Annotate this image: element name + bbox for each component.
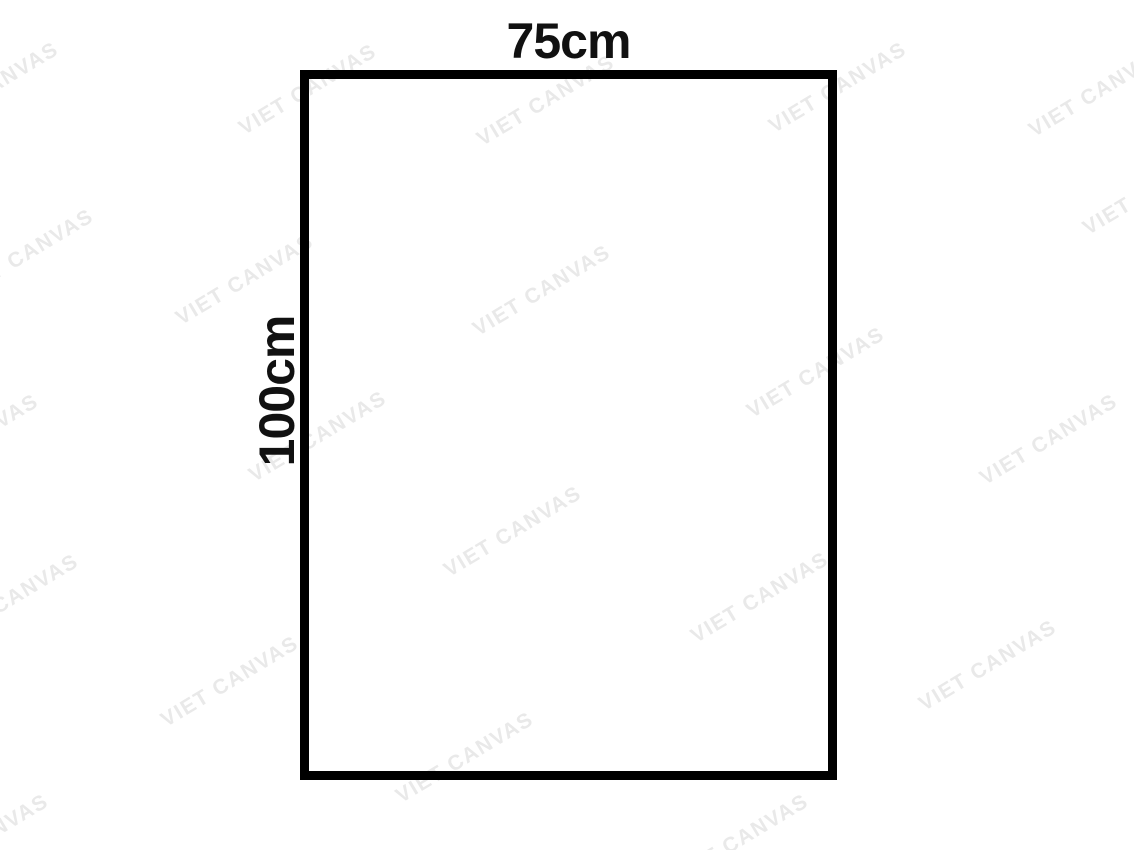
watermark-text: VIET CANVAS [1079, 140, 1134, 241]
watermark-text: VIET CANVAS [0, 38, 63, 139]
watermark-text: VIET CANVAS [1025, 42, 1134, 143]
height-dimension-label: 100cm [252, 316, 302, 467]
watermark-text: VIET CANVAS [667, 790, 813, 850]
dimension-diagram: VIET CANVASVIET CANVASVIET CANVASVIET CA… [0, 0, 1134, 850]
watermark-text: VIET CANVAS [0, 205, 98, 306]
watermark-text: VIET CANVAS [157, 632, 303, 733]
width-dimension-label: 75cm [300, 16, 837, 66]
watermark-text: VIET CANVAS [976, 390, 1122, 491]
watermark-text: VIET CANVAS [0, 550, 83, 651]
watermark-text: VIET CANVAS [0, 390, 43, 491]
rectangle-outline [300, 70, 837, 780]
watermark-text: VIET CANVAS [915, 616, 1061, 717]
watermark-text: VIET CANVAS [0, 790, 53, 850]
